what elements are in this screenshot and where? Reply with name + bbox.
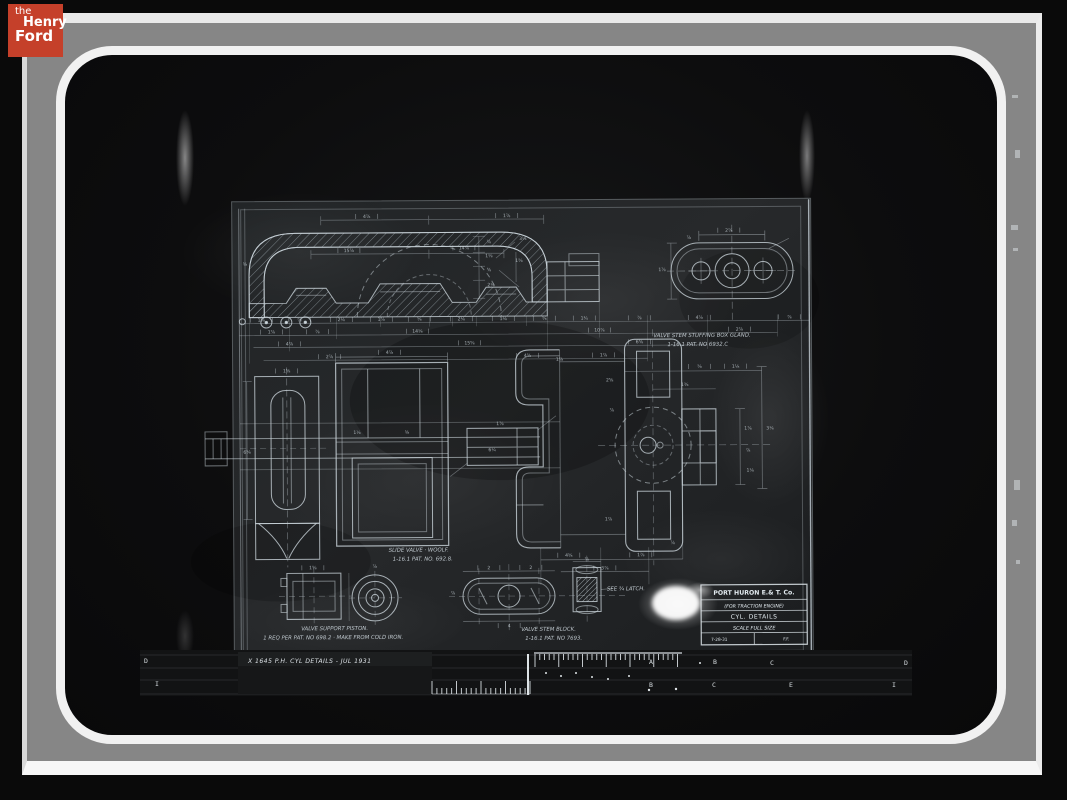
dim-label: 4⅞	[696, 315, 704, 321]
ruler-letter: A	[649, 658, 653, 666]
ruler-letter: C	[712, 681, 716, 689]
dim-label: 1⅛	[353, 430, 361, 436]
dim-label: ⅞	[637, 315, 642, 321]
dim-label: 2	[487, 565, 490, 571]
dim-label: 2	[529, 565, 532, 571]
dim-label: 1⅝	[258, 318, 266, 324]
ruler-letter: I	[155, 680, 159, 688]
title-block-title: CYL. DETAILS	[731, 613, 778, 620]
dim-label: 1⅞	[556, 357, 564, 363]
dim-label: ⅞	[315, 329, 320, 335]
title-block-initials: F.F.	[783, 636, 789, 641]
negative-scene: 1⅝⅞2⅛1⅞⅝2⅛1⅛⅝1¾⅞4⅞⅞1⅞⅞14⅛10⅞2⅞4⅞15⅝6⅝2⅞4…	[0, 0, 1067, 800]
annotation-text: SEE ¾ LATCH.	[607, 586, 645, 592]
dim-label: 4⅞	[386, 350, 394, 356]
annotation-text: VALVE SUPPORT PISTON.	[301, 626, 368, 632]
dim-label: ⅞	[585, 557, 590, 563]
dim-label: 3⅞	[601, 565, 609, 571]
dim-label: 2⅛	[458, 316, 466, 322]
title-block-company: PORT HURON E.& T. Co.	[713, 589, 794, 596]
dim-label: 1⅝	[283, 368, 291, 374]
dim-label: ⅞	[746, 448, 751, 454]
annotation-text: 1-16.1 PAT. NO. 692.8.	[393, 556, 453, 562]
title-block-date: 7-28-31	[711, 637, 728, 642]
dim-label: 2⅞	[326, 354, 334, 360]
dim-label: 1⅛	[500, 316, 508, 322]
dim-label: ⅞	[451, 590, 456, 596]
dim-label: ⅝	[417, 317, 422, 323]
dim-label: ⅝	[243, 262, 248, 268]
dim-label: 1⅝	[515, 258, 523, 264]
annotation-text: 1-16.1 PAT. NO 7693.	[525, 636, 582, 642]
dim-label: ⅞	[687, 235, 692, 241]
ruler-letter: D	[144, 657, 148, 665]
dim-label: ⅞	[610, 407, 615, 413]
logo-word-ford: Ford	[15, 29, 63, 44]
dim-label: 6⅝	[636, 339, 644, 345]
dim-label: 6⅝	[243, 450, 251, 456]
dim-label: 1⅛	[747, 468, 755, 474]
dim-label: ⅞	[787, 314, 792, 320]
dim-label: ⅝	[697, 364, 702, 370]
title-block-subtitle: (FOR TRACTION ENGINE)	[724, 603, 784, 609]
dim-label: ⅝	[487, 267, 492, 273]
dim-label: 4	[508, 623, 511, 629]
annotation-text: VALVE STEM STUFFING BOX GLAND.	[653, 333, 750, 340]
title-block-scale: SCALE FULL SIZE	[733, 625, 776, 631]
dim-label: 1⅞	[637, 552, 645, 558]
dim-label: 1⅞	[600, 352, 608, 358]
dim-label: 1⅛	[732, 364, 740, 370]
dim-label: 1⅞	[744, 426, 752, 432]
ruler-letter: E	[789, 681, 793, 689]
dim-label: 1⅛	[485, 253, 493, 259]
dim-label: 1⅞	[605, 516, 613, 522]
dim-label: 3⅛	[766, 425, 774, 431]
dim-label: 2⅛	[338, 317, 346, 323]
dim-label: 1⅞	[378, 317, 386, 323]
dim-label: 15⅞	[344, 248, 355, 254]
dim-label: 2⅛	[487, 282, 495, 288]
annotation-text: 1-16.1 PAT. NO 6932.C	[667, 342, 728, 348]
window-content: 1⅝⅞2⅛1⅞⅝2⅛1⅛⅝1¾⅞4⅞⅞1⅞⅞14⅛10⅞2⅞4⅞15⅝6⅝2⅞4…	[140, 110, 912, 696]
dim-label: 4⅞	[363, 214, 371, 220]
dim-label: 14⅛	[412, 329, 423, 335]
dim-label: 3⅛	[519, 236, 527, 242]
annotation-text: VALVE STEM BLOCK.	[521, 627, 576, 633]
dim-label: ⅞	[373, 564, 378, 570]
dim-label: 1⅞	[496, 421, 504, 427]
dim-label: 14⅞	[459, 245, 470, 251]
blueprint-sheet: 1⅝⅞2⅛1⅞⅝2⅛1⅛⅝1¾⅞4⅞⅞1⅞⅞14⅛10⅞2⅞4⅞15⅝6⅝2⅞4…	[179, 188, 832, 664]
ruler-letter: C	[770, 659, 774, 667]
ruler-handwriting: X 1645 P.H. CYL DETAILS - JUL 1931	[247, 658, 371, 665]
annotation-text: SLIDE VALVE · WOOLF.	[389, 547, 449, 553]
dim-label: 1¾	[581, 316, 589, 322]
ruler-letter: B	[713, 658, 717, 666]
dim-label: ⅞	[670, 540, 675, 546]
glare-spot	[638, 578, 718, 630]
plate-margin-specks	[1011, 95, 1020, 564]
ruler-letter: B	[649, 681, 653, 689]
ruler-letter: I	[892, 681, 896, 689]
dim-label: ⅝	[542, 316, 547, 322]
dim-label: 2⅞	[725, 228, 733, 234]
dim-label: 1⅞	[503, 213, 511, 219]
dim-label: ⅞	[487, 239, 492, 245]
annotation-text: 1 REQ PER PAT. NO 698.2 · MAKE FROM COLD…	[263, 635, 403, 642]
dim-label: 6¼	[488, 447, 496, 453]
dim-label: 4⅝	[565, 553, 573, 559]
ruler-strip: DABCDIBCEI X 1645 P.H. CYL DETAILS - JUL…	[140, 650, 912, 696]
dim-label: ⅞	[297, 317, 302, 323]
henry-ford-logo: the Henry Ford	[8, 4, 63, 57]
dim-label: 1⅞	[658, 267, 666, 273]
dim-label: 2⅝	[606, 377, 614, 383]
archival-photo-page: { "colors": { "logo_bg": "#c5402a", "pla…	[0, 0, 1067, 800]
dim-label: ⅝	[405, 430, 410, 436]
dim-label: 1⅝	[309, 565, 317, 571]
dim-label: 15⅝	[464, 340, 475, 346]
dim-label: 1⅞	[268, 330, 276, 336]
dim-label: 4⅝	[524, 353, 532, 359]
dim-label: 10⅞	[594, 327, 605, 333]
dim-label: 1⅜	[681, 382, 689, 388]
ruler-letter: D	[904, 659, 908, 667]
dim-label: 4⅞	[286, 341, 294, 347]
